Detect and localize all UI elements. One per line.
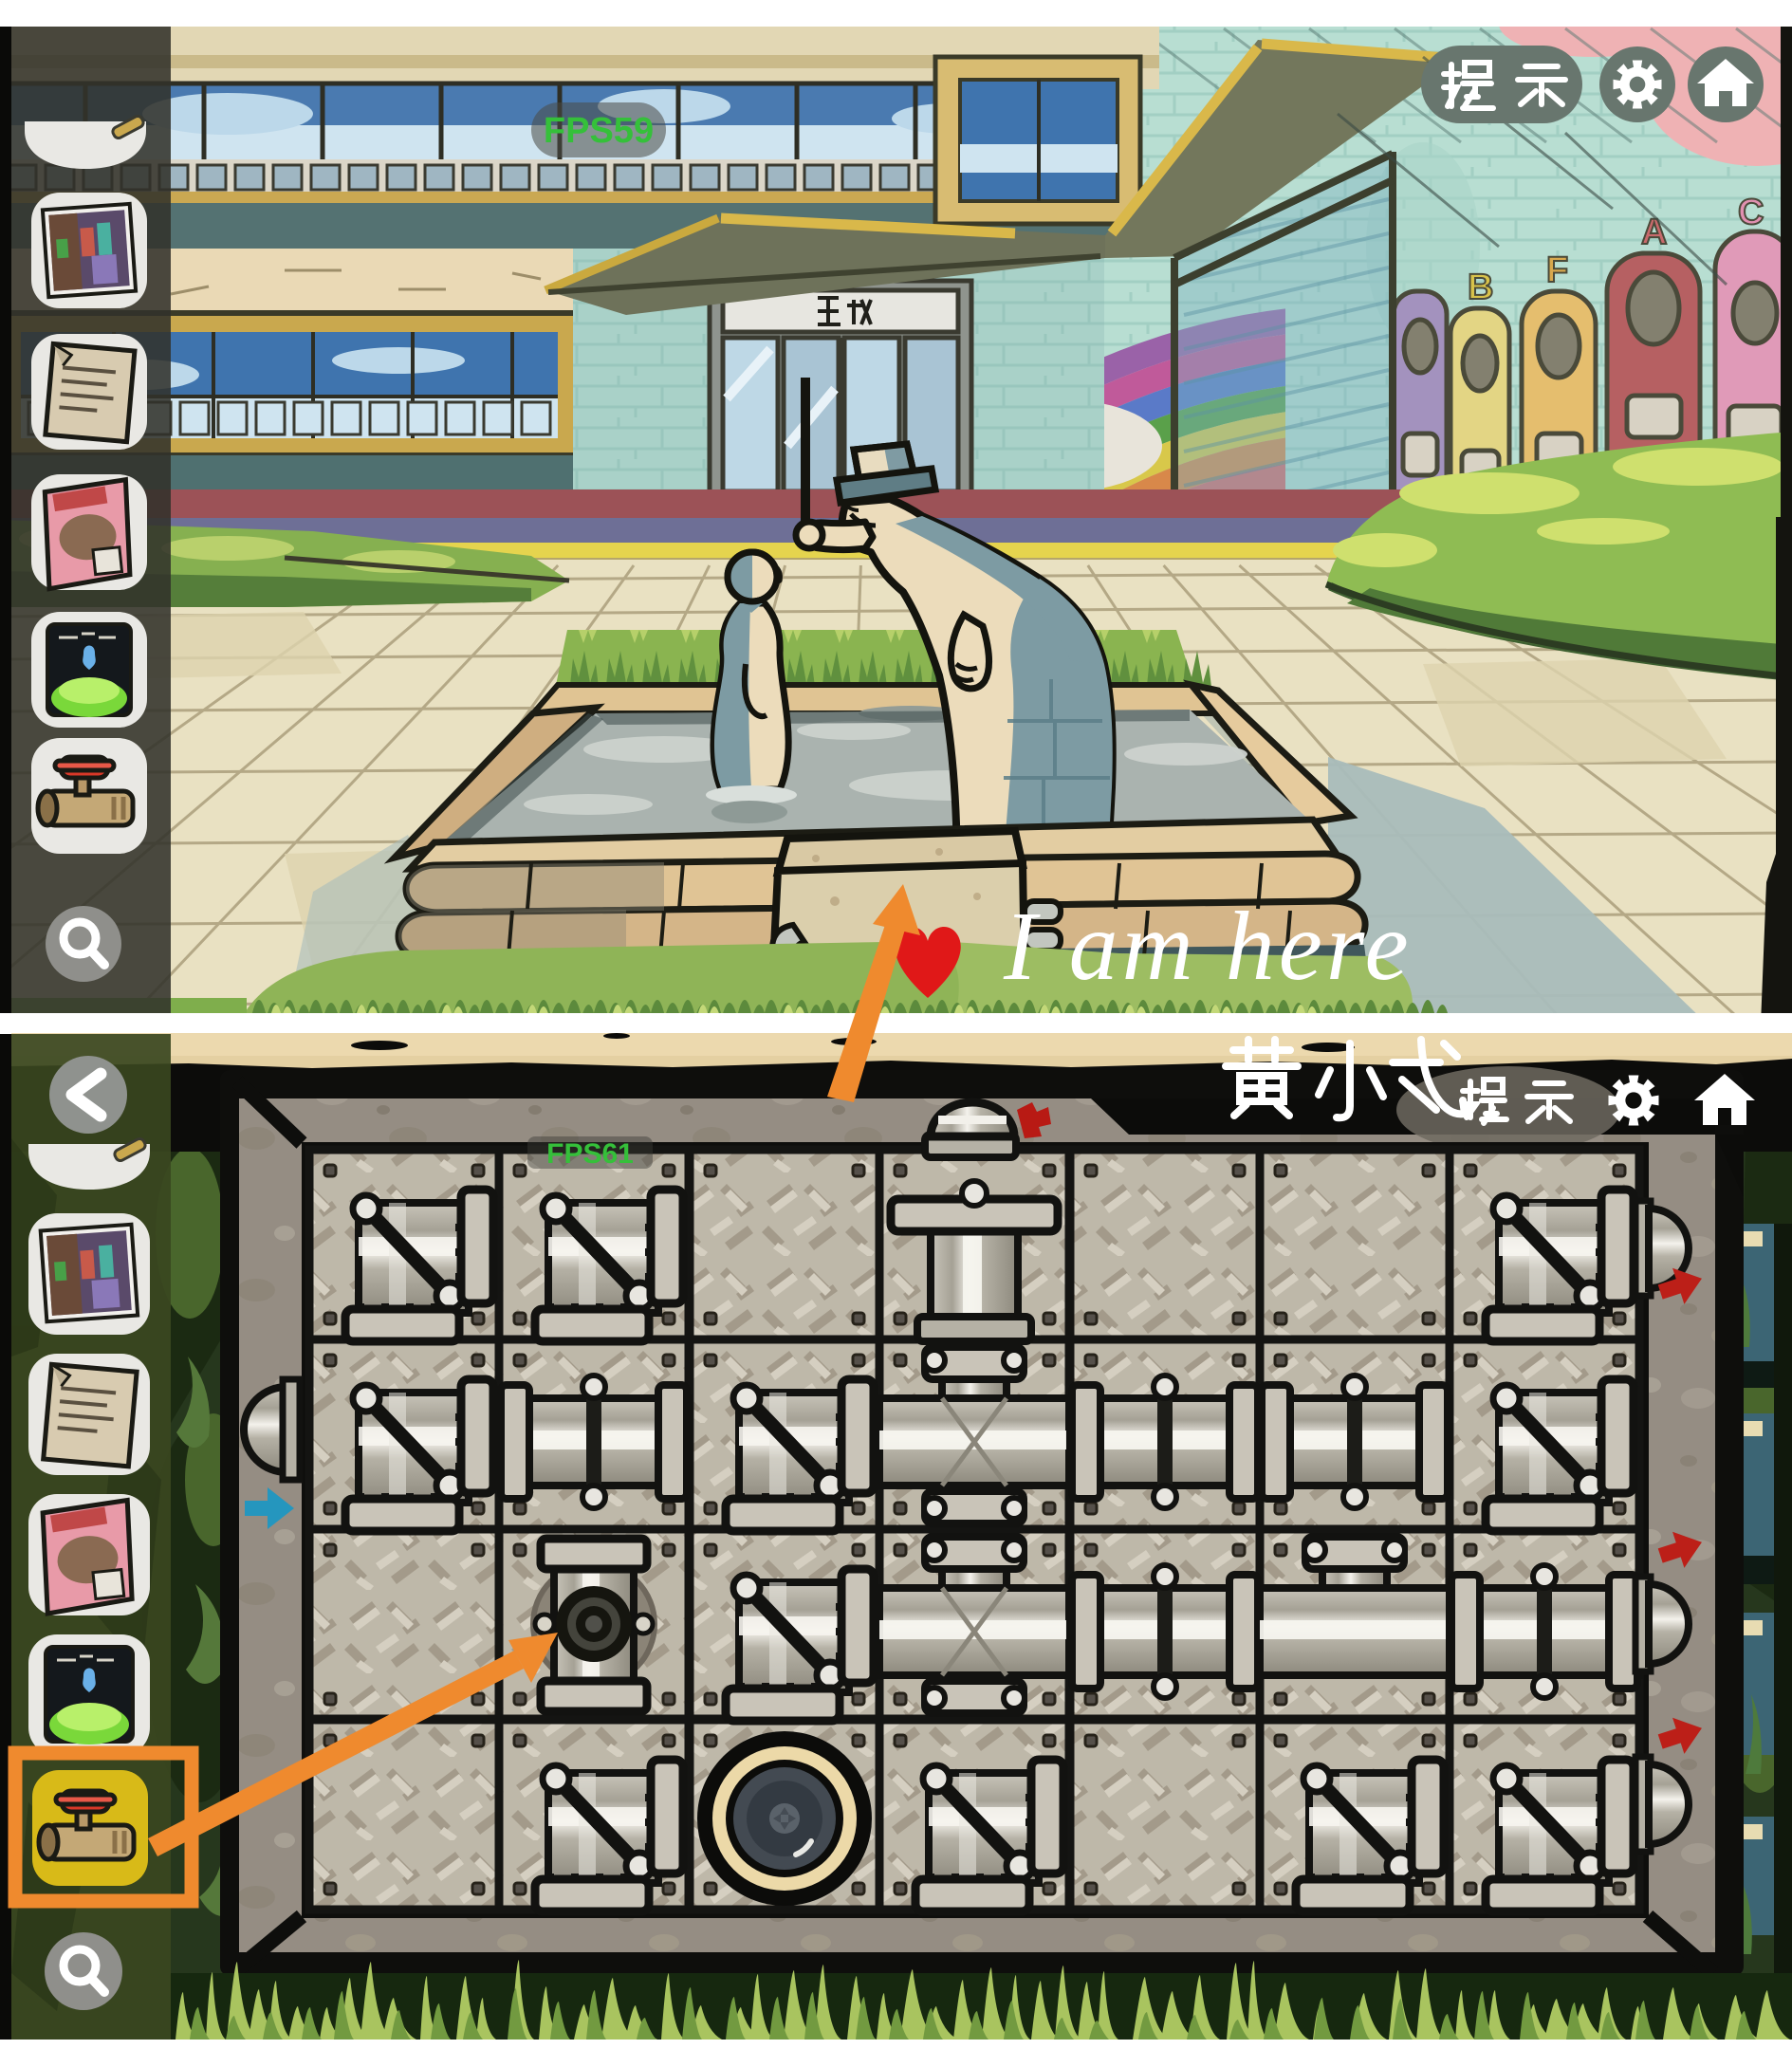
svg-text:B: B — [1468, 268, 1493, 307]
svg-text:I am here: I am here — [1003, 892, 1413, 1001]
svg-text:A: A — [1641, 212, 1667, 252]
svg-text:FPS61: FPS61 — [546, 1138, 634, 1170]
svg-text:FPS59: FPS59 — [544, 111, 654, 151]
svg-text:C: C — [1738, 193, 1764, 232]
svg-text:F: F — [1546, 250, 1568, 290]
